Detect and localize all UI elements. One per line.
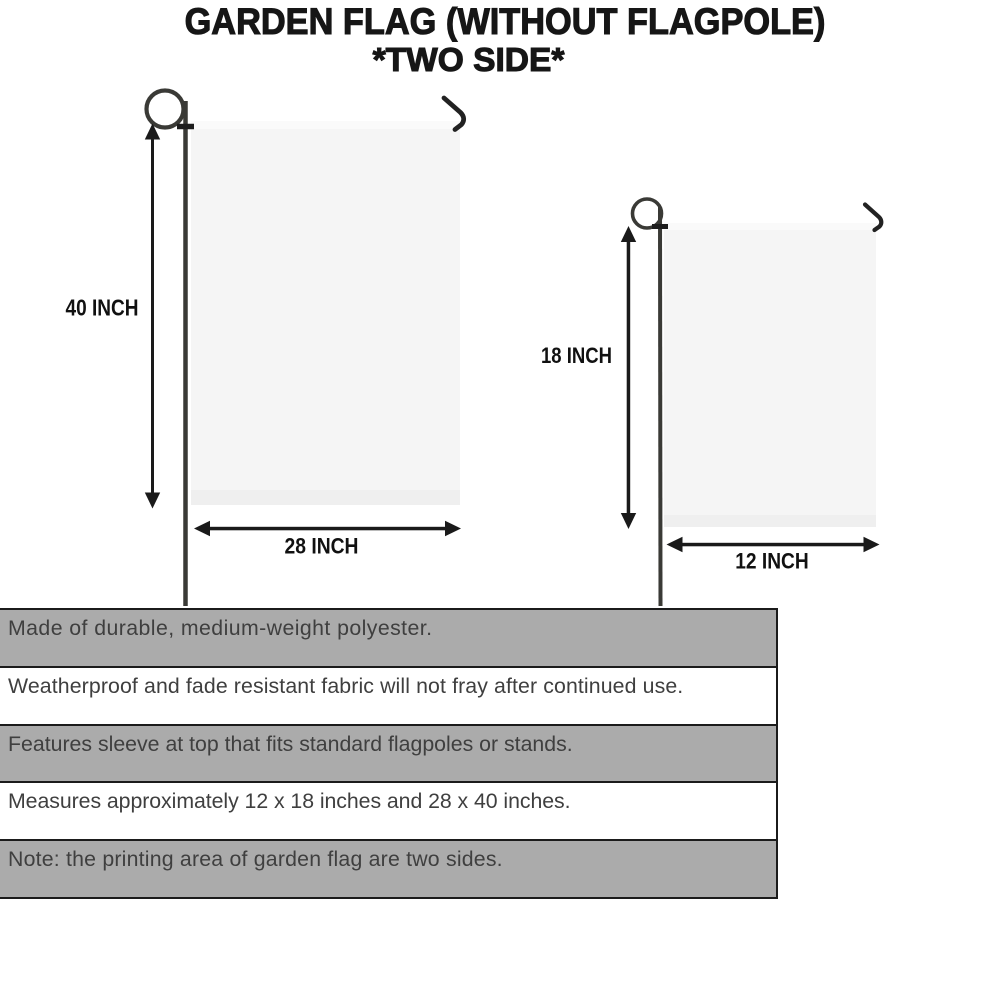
svg-text:40 INCH: 40 INCH <box>66 295 139 321</box>
svg-text:12 INCH: 12 INCH <box>735 549 809 574</box>
svg-text:18 INCH: 18 INCH <box>541 343 612 368</box>
svg-text:28 INCH: 28 INCH <box>285 534 359 559</box>
